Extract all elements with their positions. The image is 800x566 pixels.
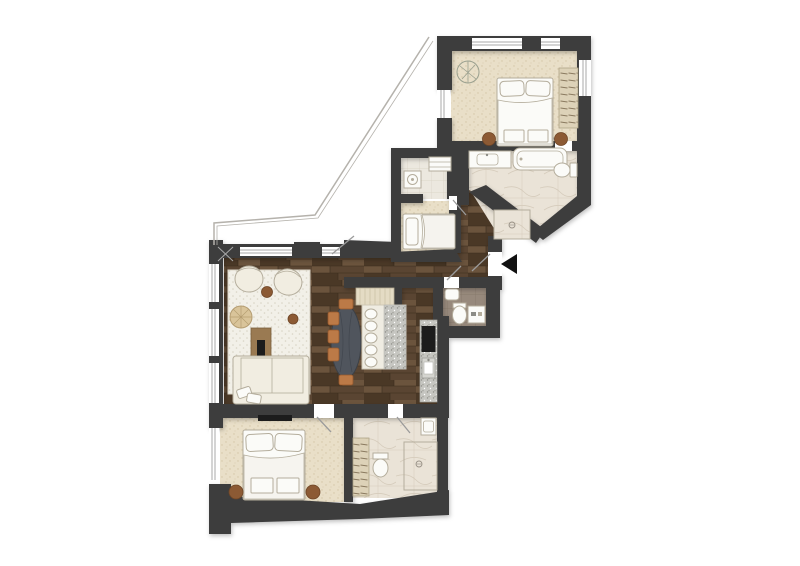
side-table (288, 314, 298, 324)
door-opening (444, 277, 459, 288)
entrance-door-opening (488, 252, 502, 276)
dining-chair (328, 312, 339, 325)
bar-seat (365, 309, 377, 319)
kitchen-sink (422, 358, 435, 378)
wall-segment (437, 414, 448, 500)
window (437, 90, 450, 118)
sofa (233, 356, 309, 404)
window (209, 363, 219, 403)
window (240, 247, 292, 256)
dining-chair (339, 375, 353, 385)
wall-segment (209, 484, 231, 534)
wardrobe (353, 438, 369, 496)
washing-machine (468, 306, 485, 323)
nightstand (306, 485, 320, 499)
wardrobe (559, 68, 578, 128)
guest-bed-nook (403, 214, 455, 249)
shelf (429, 157, 451, 171)
entrance-arrow-icon (501, 254, 517, 274)
nightstand (555, 133, 568, 146)
window (541, 38, 560, 49)
floorplan-drawing (0, 0, 800, 566)
sink (421, 418, 436, 435)
armchair (235, 266, 263, 292)
window (209, 309, 219, 356)
wall-segment (294, 242, 320, 258)
dining-chair (339, 299, 353, 309)
single-bed (403, 214, 455, 249)
double-bed (243, 430, 305, 500)
floorplan-canvas (0, 0, 800, 566)
wall-segment (344, 277, 498, 288)
window (322, 247, 340, 256)
nightstand (229, 485, 243, 499)
cooktop (422, 326, 436, 352)
toilet (453, 303, 467, 324)
bar-seat (365, 357, 377, 367)
window (209, 428, 219, 480)
hallway (501, 254, 517, 274)
double-bed (497, 78, 553, 146)
door-opening (388, 404, 403, 418)
wall-segment (433, 326, 498, 338)
window (579, 60, 591, 96)
window (472, 38, 522, 49)
sideboard (356, 288, 394, 305)
toilet (373, 453, 388, 477)
dining-chair (328, 330, 339, 343)
wall-segment (393, 194, 423, 203)
kitchen-counter (420, 320, 437, 402)
door-opening (314, 404, 334, 418)
side-table (262, 287, 273, 298)
tv (258, 415, 292, 421)
shower (494, 210, 530, 239)
bar-seat (365, 333, 377, 343)
sink (445, 289, 459, 300)
bar-seat (365, 345, 377, 355)
window (209, 264, 219, 302)
shower (404, 442, 437, 490)
vanity-sink (469, 151, 511, 168)
wall-segment (344, 240, 398, 258)
nightstand (483, 133, 496, 146)
kitchen-island (362, 305, 406, 369)
dining-chair (328, 348, 339, 361)
bar-seat (365, 321, 377, 331)
toilet (554, 163, 577, 177)
tv (257, 340, 265, 357)
woven-pouf (230, 306, 252, 328)
wall-segment (344, 418, 353, 502)
living-room (218, 247, 310, 404)
wall-segment (437, 36, 452, 90)
washing-machine (404, 171, 421, 188)
